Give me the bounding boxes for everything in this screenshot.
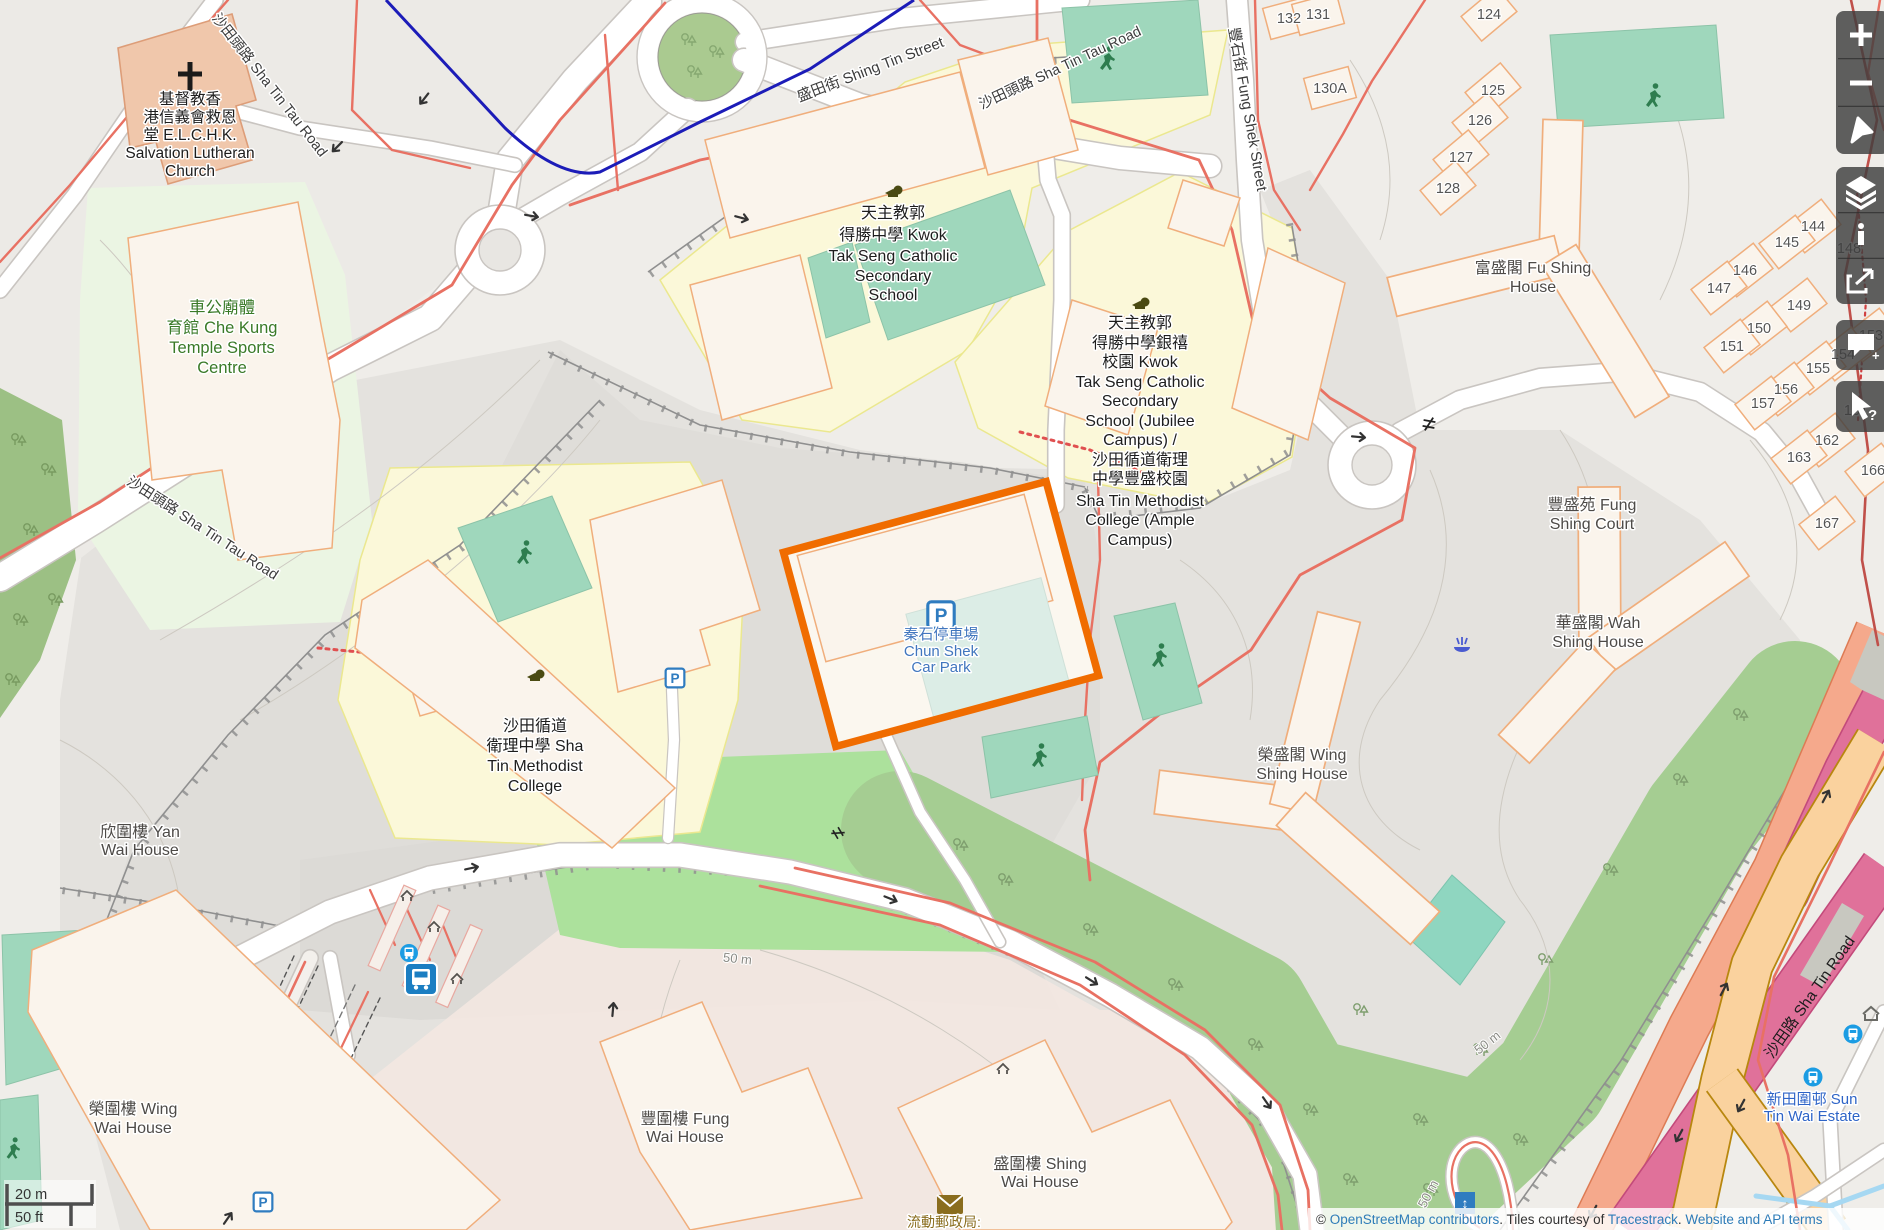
svg-text:新田圍邨 Sun: 新田圍邨 Sun [1767,1091,1858,1108]
svg-text:College (Ample: College (Ample [1085,512,1194,529]
svg-text:衛理中學 Sha: 衛理中學 Sha [487,737,584,755]
svg-text:?: ? [1868,407,1877,424]
svg-text:欣圍樓 Yan: 欣圍樓 Yan [100,823,180,841]
svg-text:堂 E.L.C.H.K.: 堂 E.L.C.H.K. [143,126,236,144]
svg-text:天主教郭: 天主教郭 [1108,314,1172,332]
svg-text:P: P [258,1195,267,1210]
svg-text:130A: 130A [1313,81,1347,97]
svg-text:155: 155 [1806,361,1830,377]
svg-text:Centre: Centre [197,359,247,377]
svg-text:Wai House: Wai House [646,1129,724,1146]
svg-text:167: 167 [1815,516,1839,532]
svg-text:149: 149 [1787,298,1811,314]
svg-text:Tin Methodist: Tin Methodist [487,758,583,775]
svg-text:150: 150 [1747,321,1771,337]
svg-text:得勝中學 Kwok: 得勝中學 Kwok [839,226,948,244]
svg-text:秦石停車場: 秦石停車場 [903,626,978,643]
svg-text:146: 146 [1733,263,1757,279]
svg-text:156: 156 [1774,382,1798,398]
svg-text:Tin Wai Estate: Tin Wai Estate [1764,1108,1860,1125]
svg-text:Campus): Campus) [1108,532,1173,549]
svg-text:Secondary: Secondary [855,268,932,285]
svg-text:車公廟體: 車公廟體 [189,298,255,317]
svg-text:中學豐盛校園: 中學豐盛校園 [1092,470,1188,488]
svg-text:Campus) /: Campus) / [1103,432,1177,449]
svg-text:Shing House: Shing House [1256,766,1348,783]
svg-text:Wai House: Wai House [1001,1174,1079,1191]
svg-text:126: 126 [1468,113,1492,129]
svg-text:50 ft: 50 ft [15,1210,43,1226]
svg-text:Wai House: Wai House [94,1120,172,1137]
svg-text:School: School [869,287,918,304]
svg-text:沙田循道: 沙田循道 [503,717,567,735]
svg-text:128: 128 [1436,181,1460,197]
svg-text:華盛閣 Wah: 華盛閣 Wah [1556,614,1641,632]
svg-text:P: P [670,671,679,686]
svg-text:Wai House: Wai House [101,842,179,859]
svg-text:147: 147 [1707,281,1731,297]
svg-text:Temple Sports: Temple Sports [169,339,274,357]
svg-text:得勝中學銀禧: 得勝中學銀禧 [1092,334,1188,352]
svg-text:Chun Shek: Chun Shek [904,643,979,660]
svg-text:144: 144 [1801,219,1825,235]
svg-text:Car Park: Car Park [911,659,971,676]
svg-text:50 m: 50 m [722,950,752,968]
svg-text:Secondary: Secondary [1102,393,1179,410]
svg-text:151: 151 [1720,339,1744,355]
svg-text:132: 132 [1277,11,1301,27]
svg-text:+: + [1872,348,1880,363]
svg-text:豐圍樓 Fung: 豐圍樓 Fung [641,1110,730,1128]
svg-text:校園 Kwok: 校園 Kwok [1102,353,1179,371]
svg-text:Shing Court: Shing Court [1550,516,1635,533]
svg-text:166: 166 [1861,463,1884,479]
svg-text:盛圍樓 Shing: 盛圍樓 Shing [993,1155,1086,1173]
svg-text:榮盛閣 Wing: 榮盛閣 Wing [1258,746,1347,764]
svg-text:163: 163 [1787,450,1811,466]
svg-text:20 m: 20 m [15,1187,47,1203]
svg-text:127: 127 [1449,150,1473,166]
svg-text:富盛閣 Fu Shing: 富盛閣 Fu Shing [1475,259,1592,277]
svg-text:沙田循道衛理: 沙田循道衛理 [1092,451,1188,469]
svg-text:港信義會救恩: 港信義會救恩 [143,108,236,126]
svg-text:天主教郭: 天主教郭 [861,204,925,222]
svg-text:157: 157 [1751,396,1775,412]
svg-text:Church: Church [165,163,215,180]
svg-text:Shing House: Shing House [1552,634,1644,651]
svg-text:豐盛苑 Fung: 豐盛苑 Fung [1548,496,1637,514]
svg-text:P: P [935,606,948,627]
svg-text:House: House [1510,279,1556,296]
svg-text:131: 131 [1306,7,1330,23]
svg-text:育館 Che Kung: 育館 Che Kung [167,318,278,337]
svg-text:Tak Seng Catholic: Tak Seng Catholic [829,248,958,265]
svg-text:基督教香: 基督教香 [159,90,221,108]
svg-text:Sha Tin Methodist: Sha Tin Methodist [1076,493,1205,510]
svg-text:125: 125 [1481,83,1505,99]
svg-text:Salvation Lutheran: Salvation Lutheran [125,145,254,162]
svg-text:College: College [508,778,562,795]
svg-text:流動郵政局:: 流動郵政局: [907,1214,981,1230]
svg-text:榮圍樓 Wing: 榮圍樓 Wing [89,1100,178,1118]
svg-text:145: 145 [1775,235,1799,251]
svg-text:124: 124 [1477,7,1501,23]
svg-text:© OpenStreetMap contributors.: © OpenStreetMap contributors. Tiles cour… [1316,1212,1823,1227]
svg-text:Tak Seng Catholic: Tak Seng Catholic [1076,374,1205,391]
svg-text:School (Jubilee: School (Jubilee [1085,413,1195,430]
svg-text:162: 162 [1815,433,1839,449]
